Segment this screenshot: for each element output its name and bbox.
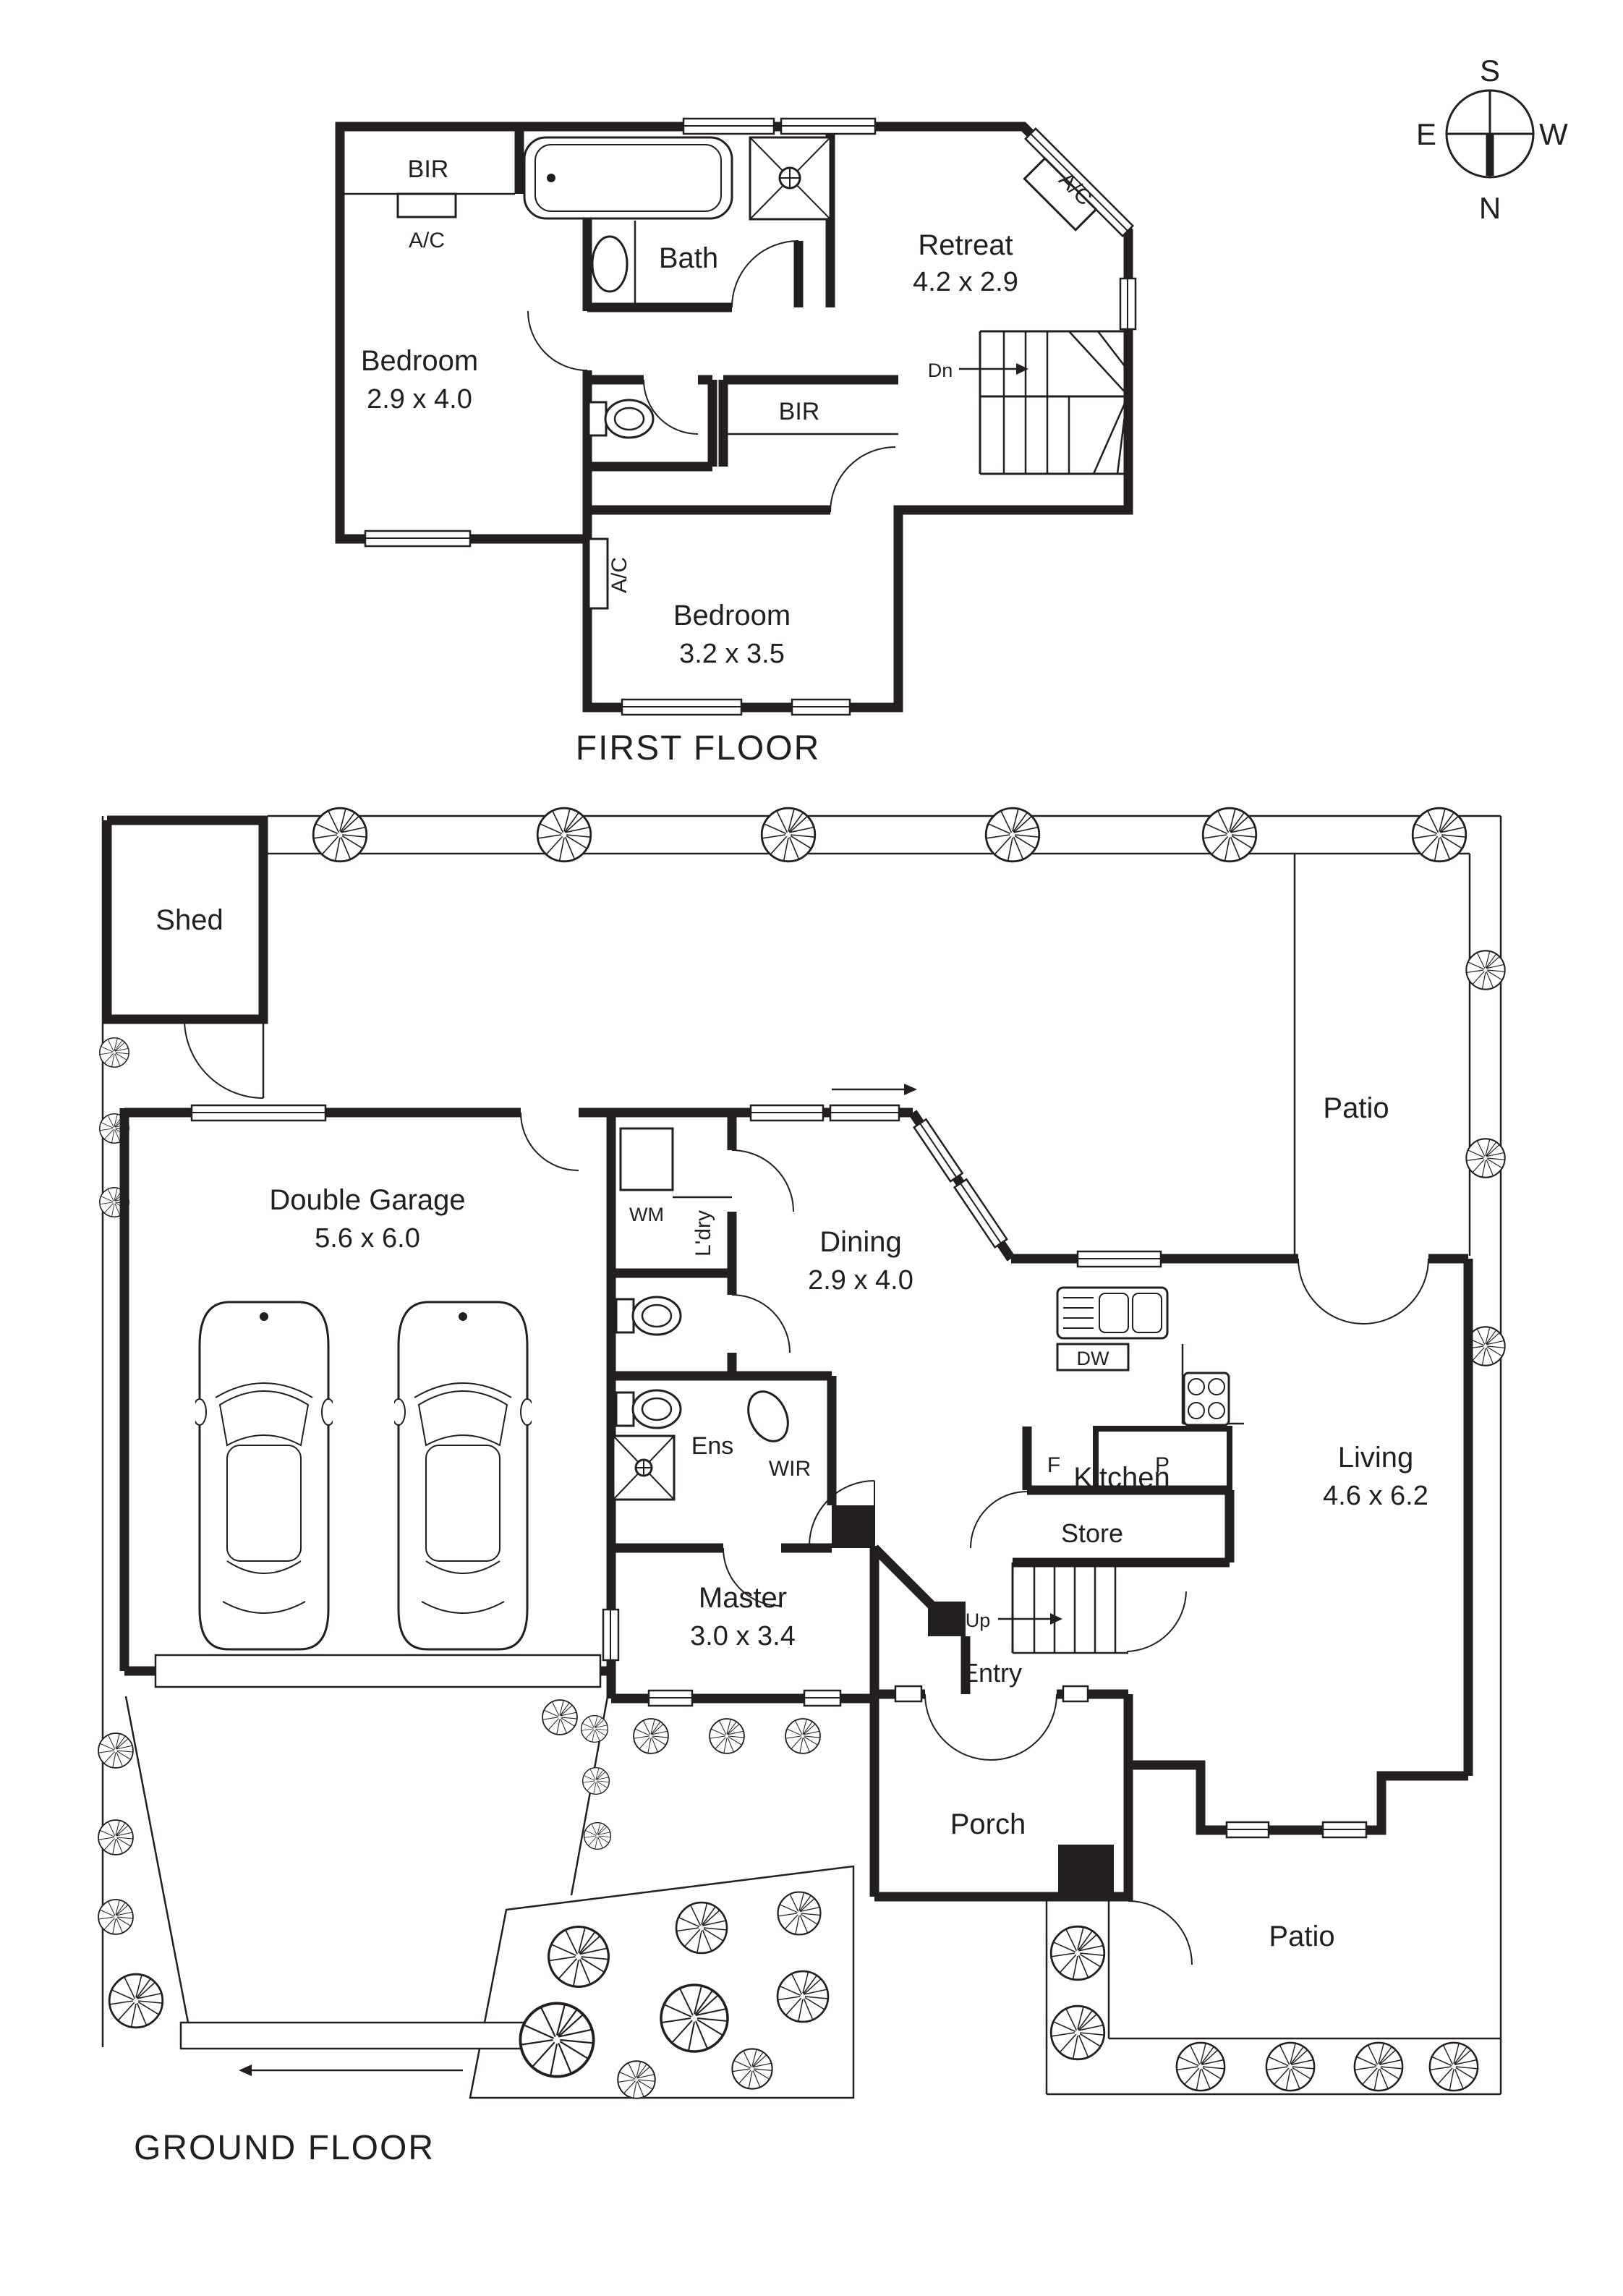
- driveway-gate: [181, 2023, 571, 2076]
- patio-bottom-label: Patio: [1269, 1921, 1334, 1952]
- car-right: [392, 1302, 534, 1649]
- stairs-down-arrow: [959, 363, 1028, 375]
- bedroom2-dims: 3.2 x 3.5: [679, 639, 785, 669]
- stairs-dn-label: Dn: [928, 360, 953, 381]
- entry-label: Entry: [961, 1658, 1022, 1688]
- retreat-name: Retreat: [918, 229, 1013, 261]
- bir2-label: BIR: [779, 398, 820, 425]
- stairs-up-label: Up: [966, 1610, 991, 1631]
- dining-name: Dining: [819, 1226, 901, 1258]
- garage-name: Double Garage: [269, 1184, 465, 1216]
- first-floor-plan: BIR A/C Bedroom 2.9 x 4.0 Bath Retreat 4…: [340, 119, 1136, 768]
- bedroom1-dims: 2.9 x 4.0: [367, 384, 472, 414]
- bathtub: [524, 137, 732, 218]
- floorplan-drawing: S E W N: [0, 0, 1623, 2296]
- ground-floor-title: GROUND FLOOR: [134, 2129, 435, 2167]
- bir1-label: BIR: [408, 156, 449, 183]
- compass-east-label: E: [1416, 117, 1436, 151]
- laundry: WM L'dry: [621, 1128, 732, 1257]
- shower-first-floor: [750, 137, 830, 219]
- porch-label: Porch: [950, 1808, 1026, 1840]
- ac1-label: A/C: [409, 229, 445, 252]
- toilet-powder: [616, 1297, 681, 1335]
- toilet-first-floor: [589, 400, 653, 438]
- compass-rose: S E W N: [1416, 54, 1568, 225]
- store-label: Store: [1061, 1518, 1123, 1548]
- retreat-dims: 4.2 x 2.9: [913, 267, 1018, 297]
- garage-door: [156, 1655, 600, 1687]
- compass-west-label: W: [1539, 117, 1568, 151]
- ground-floor-plan: Shed: [98, 808, 1505, 2167]
- wm-label: WM: [629, 1204, 664, 1225]
- bedroom1-name: Bedroom: [361, 345, 478, 377]
- dw-label: DW: [1077, 1348, 1109, 1369]
- garage: Double Garage 5.6 x 6.0: [156, 1184, 600, 1687]
- living-dims: 4.6 x 6.2: [1323, 1481, 1428, 1511]
- master-dims: 3.0 x 3.4: [690, 1621, 796, 1651]
- dining-dims: 2.9 x 4.0: [808, 1265, 913, 1296]
- shed-label: Shed: [156, 904, 223, 936]
- washing-machine: [621, 1128, 673, 1190]
- bath-label: Bath: [659, 242, 718, 274]
- compass-south-label: S: [1480, 54, 1500, 88]
- toilet-ensuite: [616, 1390, 681, 1428]
- ensuite-label: Ens: [691, 1432, 734, 1460]
- floorplan-page: S E W N: [0, 0, 1623, 2296]
- dining-entry-arrow: [832, 1084, 917, 1095]
- staircase-ground-floor: Up: [966, 1562, 1186, 1653]
- kitchen-sink: [1057, 1288, 1167, 1338]
- compass-north-label: N: [1479, 191, 1501, 225]
- staircase-first-floor: [980, 331, 1128, 474]
- first-floor-title: FIRST FLOOR: [576, 729, 820, 768]
- pantry-label: P: [1155, 1453, 1170, 1477]
- ac-unit-bedroom2: [589, 539, 608, 608]
- living-name: Living: [1338, 1442, 1414, 1474]
- wir-label: WIR: [769, 1457, 811, 1481]
- ldry-label: L'dry: [691, 1210, 715, 1257]
- ac-unit-bir1: [398, 194, 456, 217]
- kitchen: DW Kitchen: [1057, 1288, 1244, 1494]
- bedroom2-name: Bedroom: [673, 600, 791, 632]
- master-name: Master: [699, 1582, 787, 1614]
- shed: Shed: [107, 820, 263, 1098]
- porch-pillar: [1058, 1845, 1114, 1897]
- fridge-label: F: [1047, 1453, 1060, 1477]
- shower-ensuite: [613, 1436, 674, 1500]
- patio-top-label: Patio: [1323, 1092, 1389, 1124]
- ac2-label: A/C: [608, 557, 631, 593]
- ensuite-basin: [741, 1385, 796, 1447]
- car-left: [193, 1302, 335, 1649]
- vanity-basin: [592, 237, 627, 292]
- garage-dims: 5.6 x 6.0: [315, 1223, 420, 1254]
